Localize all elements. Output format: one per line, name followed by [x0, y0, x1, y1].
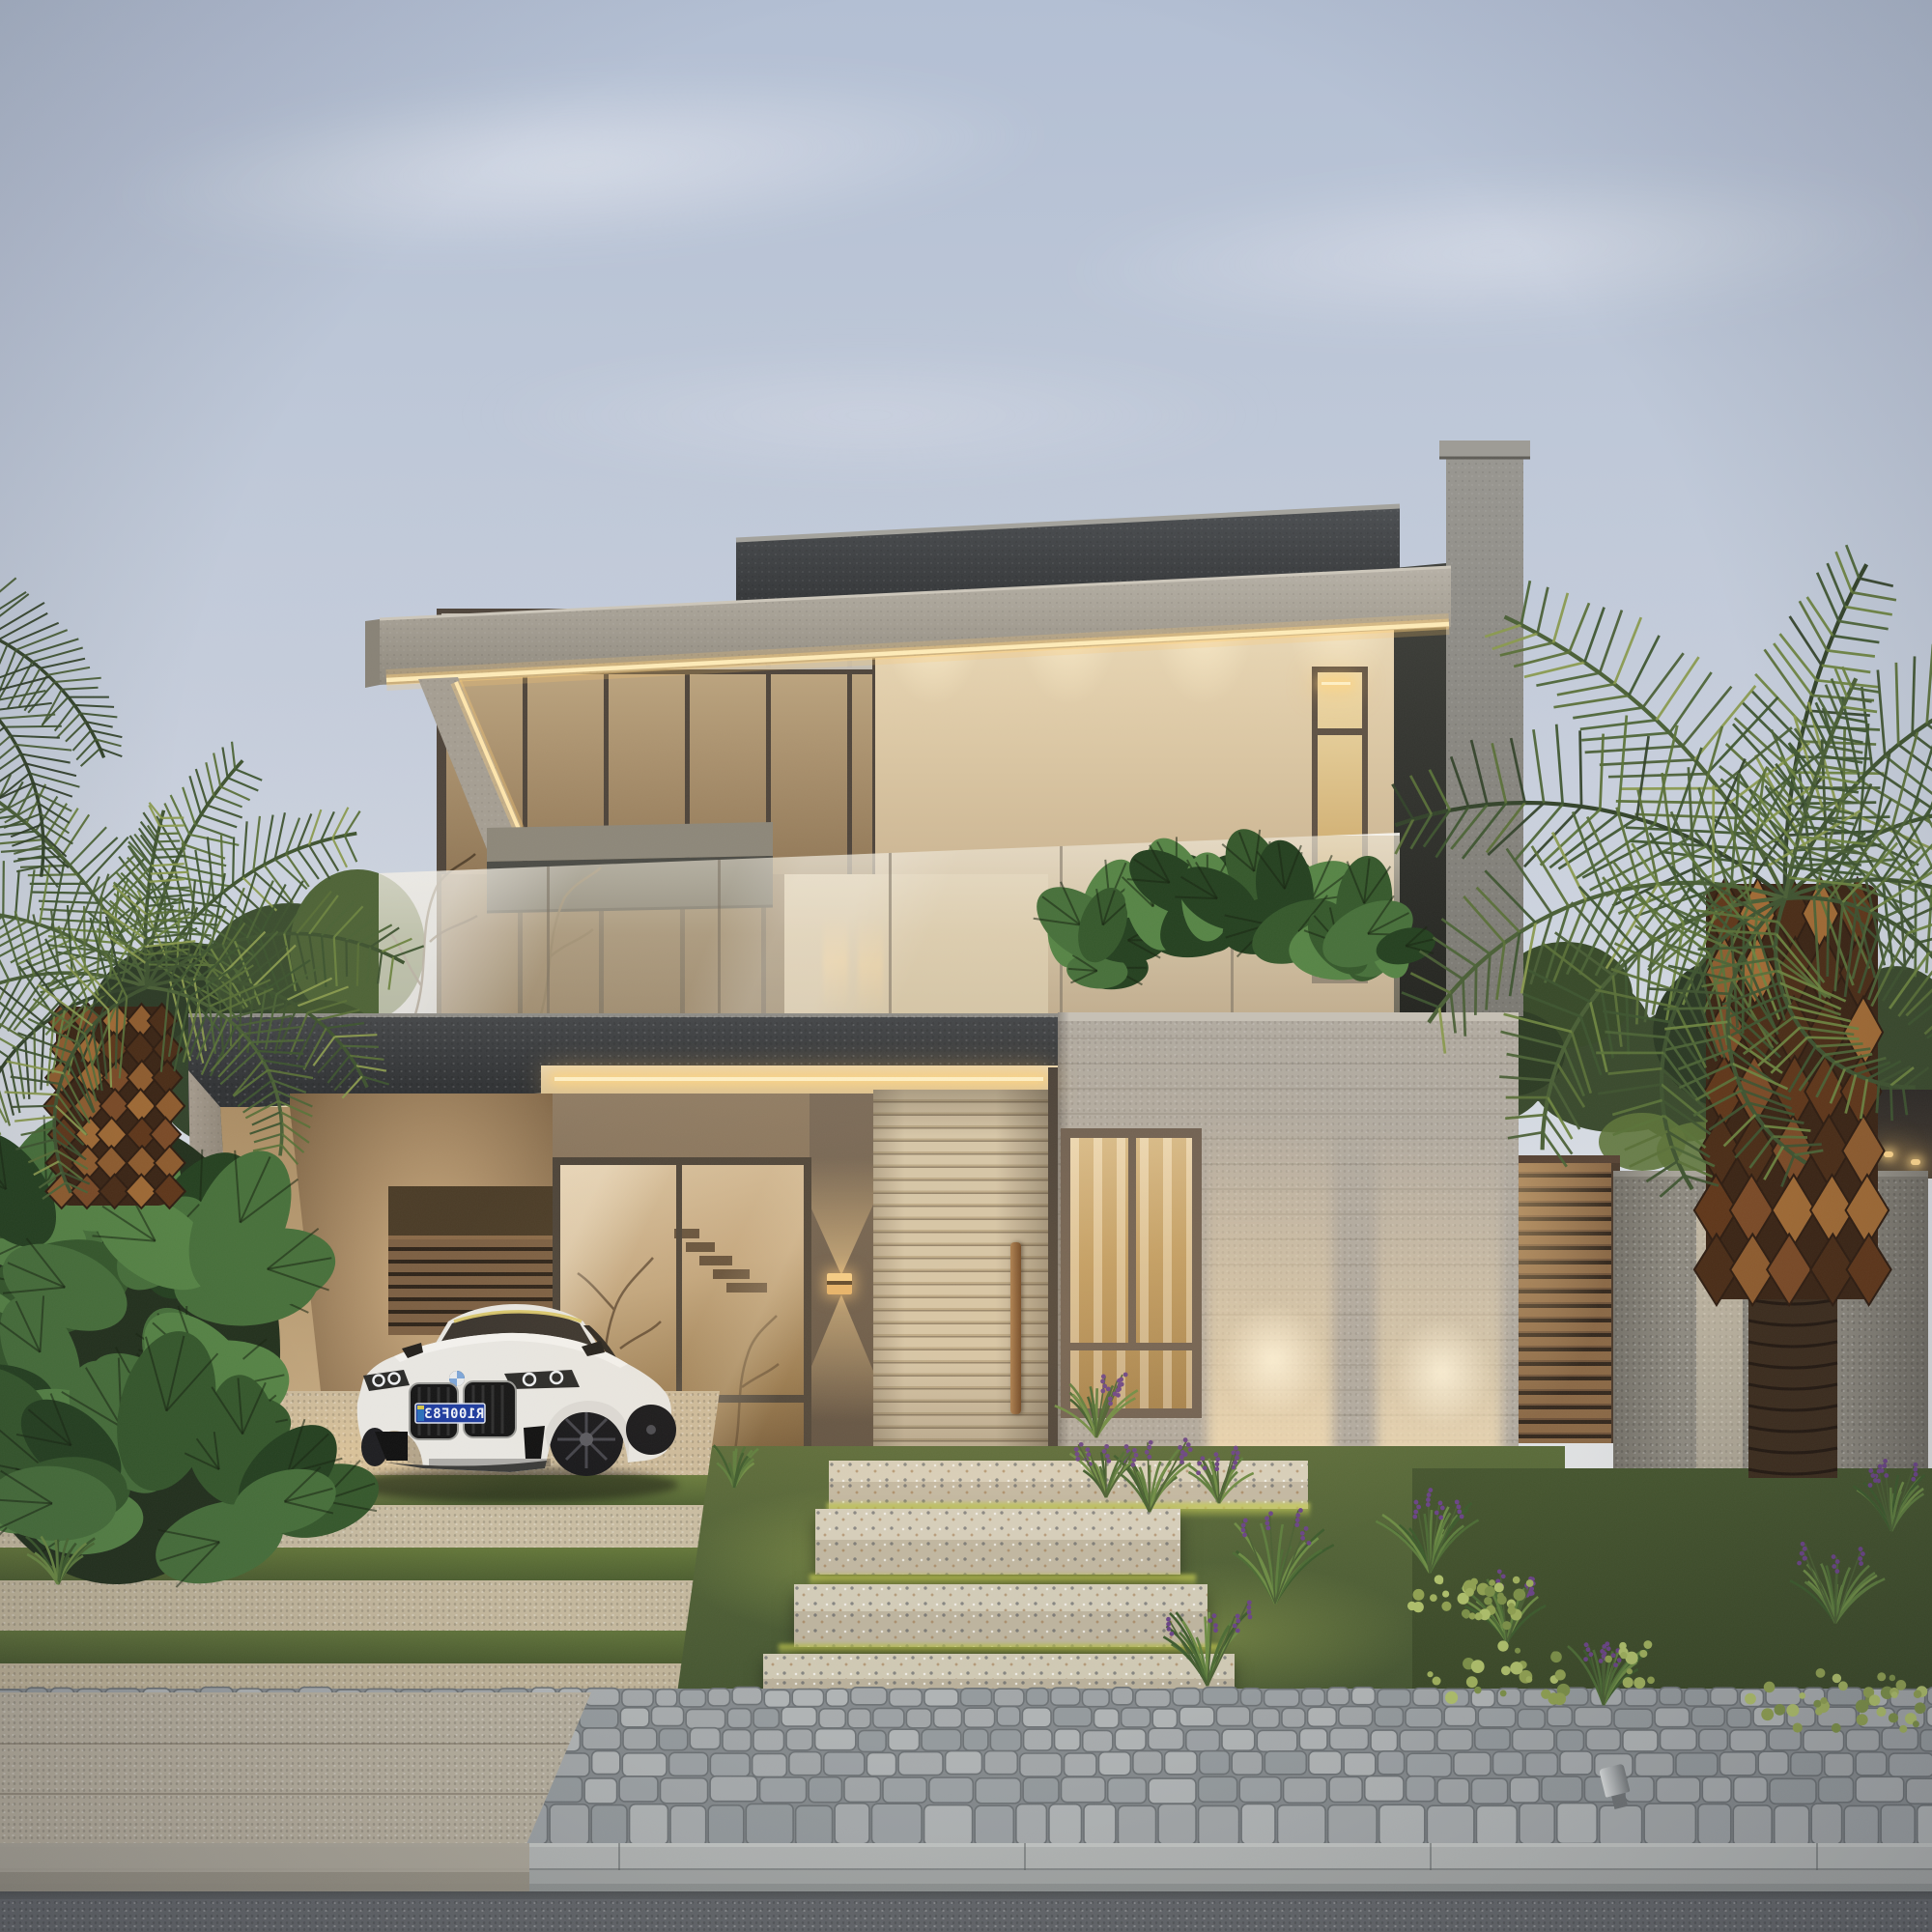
- architectural-render-scene: R100F83: [0, 0, 1932, 1932]
- vignette: [0, 0, 1932, 1932]
